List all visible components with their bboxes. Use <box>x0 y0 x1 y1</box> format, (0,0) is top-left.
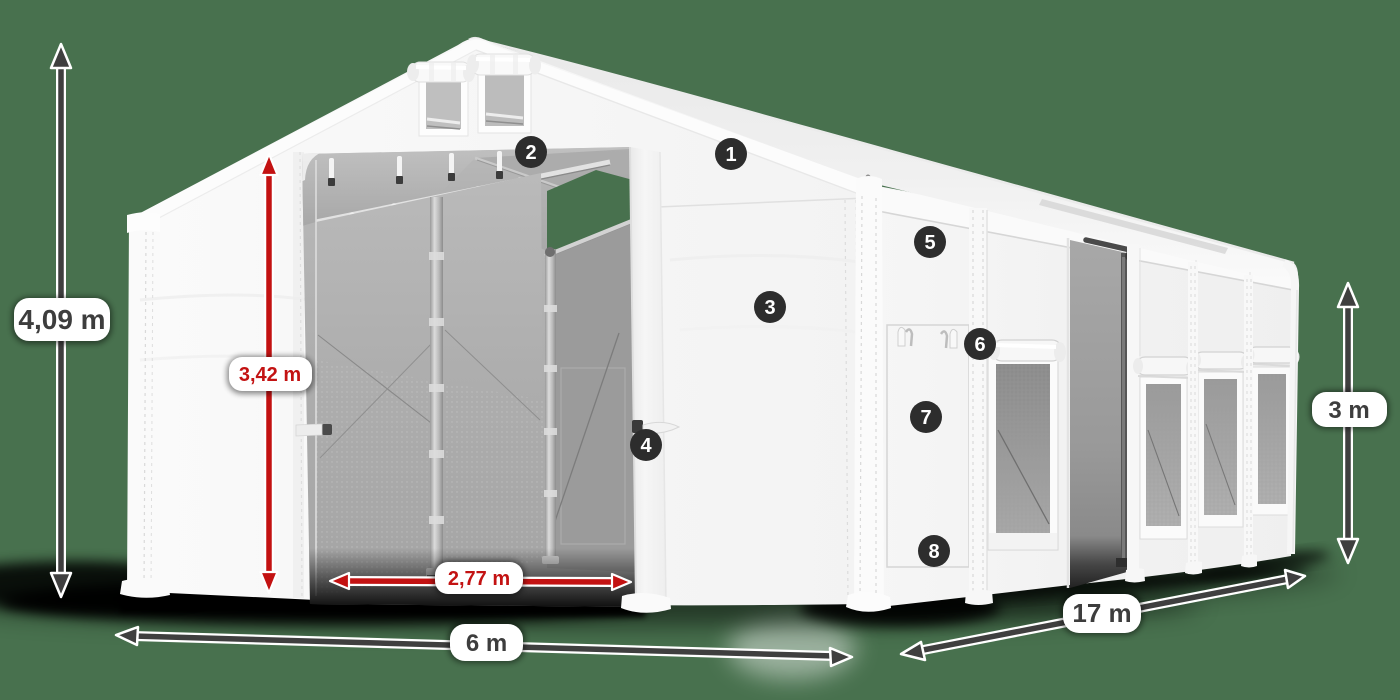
svg-text:17 m: 17 m <box>1072 598 1131 628</box>
svg-text:2: 2 <box>525 142 536 164</box>
svg-text:7: 7 <box>920 407 931 429</box>
svg-text:3,42 m: 3,42 m <box>239 364 301 386</box>
svg-text:3 m: 3 m <box>1328 397 1369 424</box>
svg-text:2,77 m: 2,77 m <box>448 568 510 590</box>
svg-text:4,09 m: 4,09 m <box>18 304 105 335</box>
svg-text:6: 6 <box>974 334 985 356</box>
svg-text:3: 3 <box>764 297 775 319</box>
svg-text:6 m: 6 m <box>466 630 507 657</box>
svg-text:8: 8 <box>928 541 939 563</box>
svg-text:1: 1 <box>725 144 736 166</box>
svg-text:4: 4 <box>640 435 652 457</box>
svg-text:5: 5 <box>924 232 935 254</box>
